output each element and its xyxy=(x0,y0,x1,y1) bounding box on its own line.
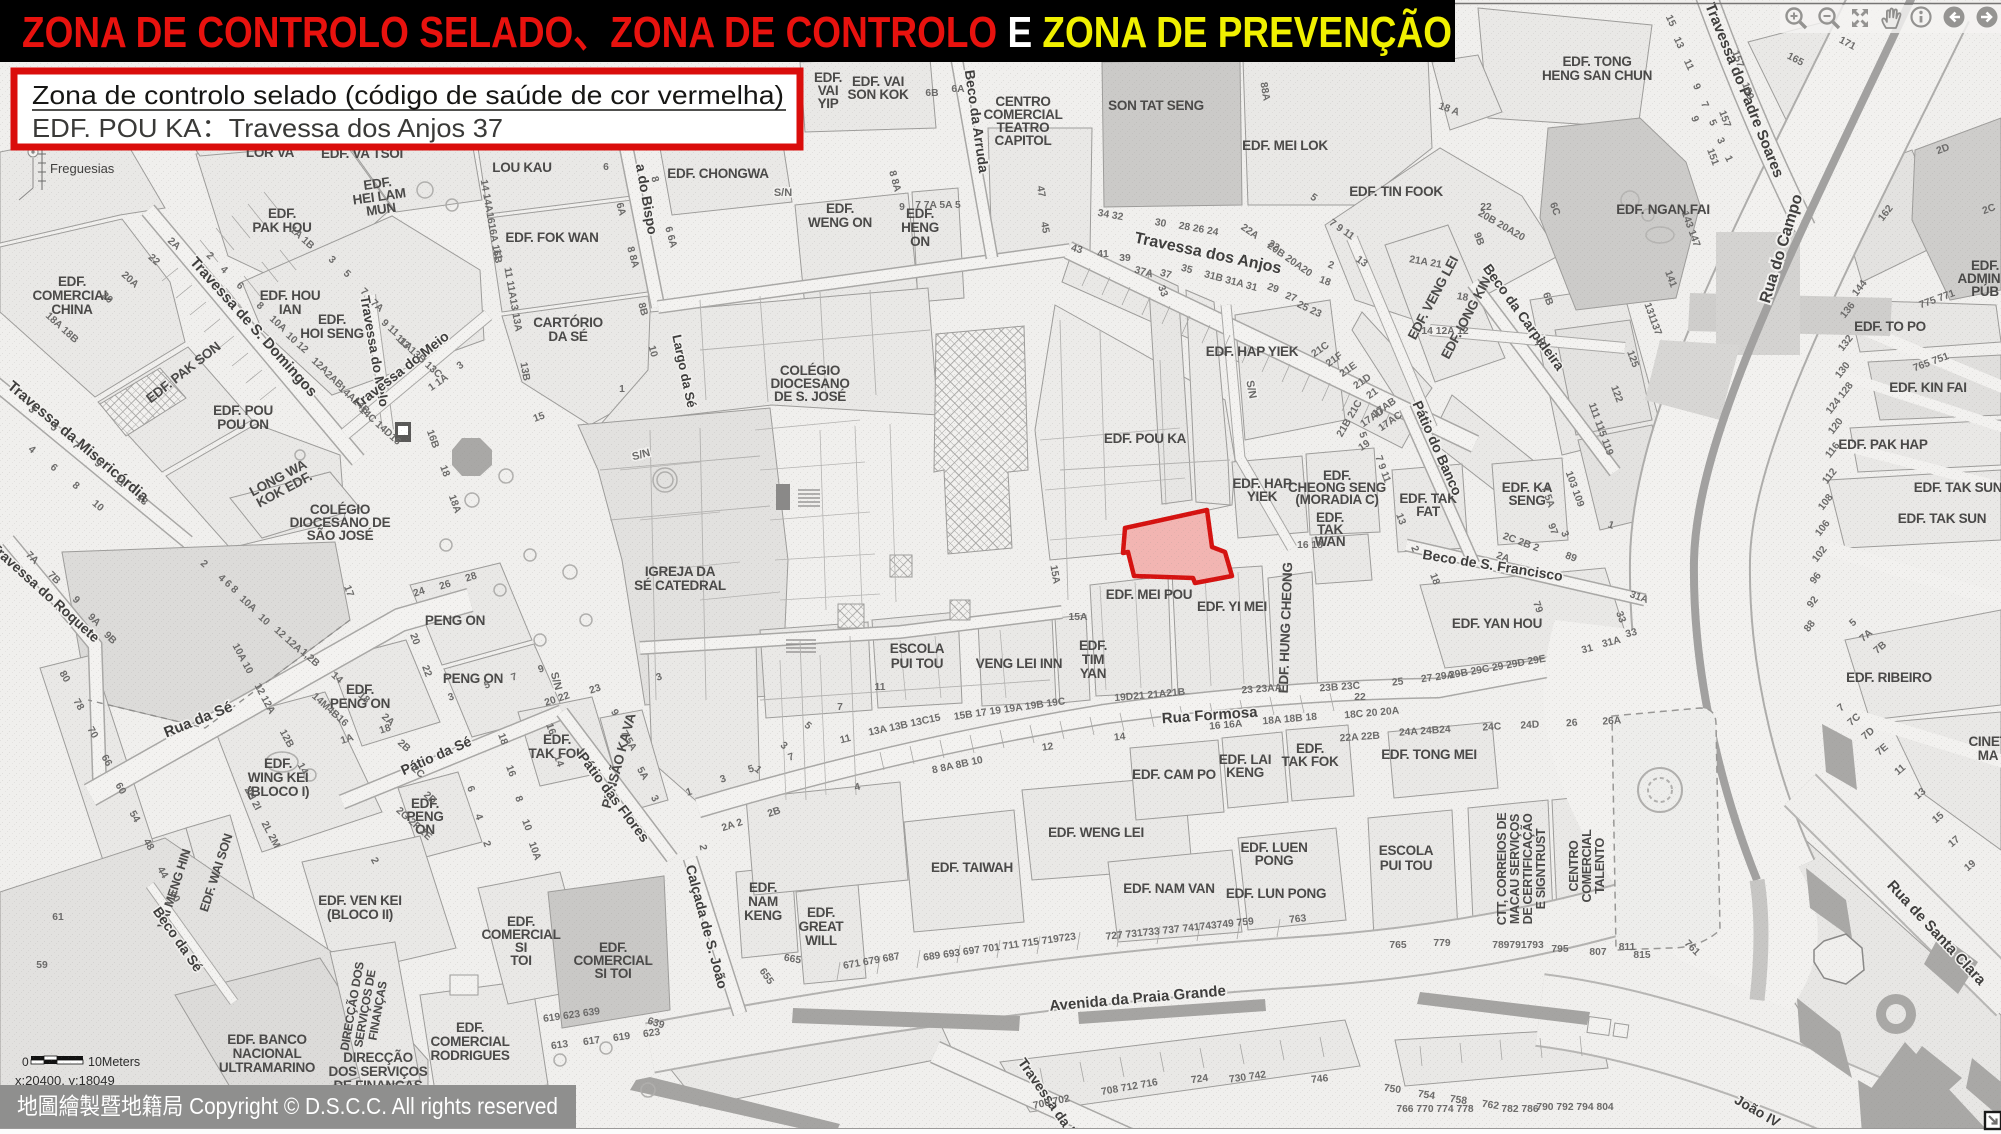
svg-text:Zona de controlo selado (códig: Zona de controlo selado (código de saúde… xyxy=(32,80,784,110)
svg-text:EDF. POU KA：Travessa dos Anjos: EDF. POU KA：Travessa dos Anjos 37 xyxy=(32,113,503,143)
svg-text:地圖繪製暨地籍局 Copyright © D.S.C.C.: 地圖繪製暨地籍局 Copyright © D.S.C.C. All rights… xyxy=(17,1093,558,1119)
svg-text:ZONA DE CONTROLO SELADO、ZONA D: ZONA DE CONTROLO SELADO、ZONA DE CONTROLO… xyxy=(22,7,1452,57)
